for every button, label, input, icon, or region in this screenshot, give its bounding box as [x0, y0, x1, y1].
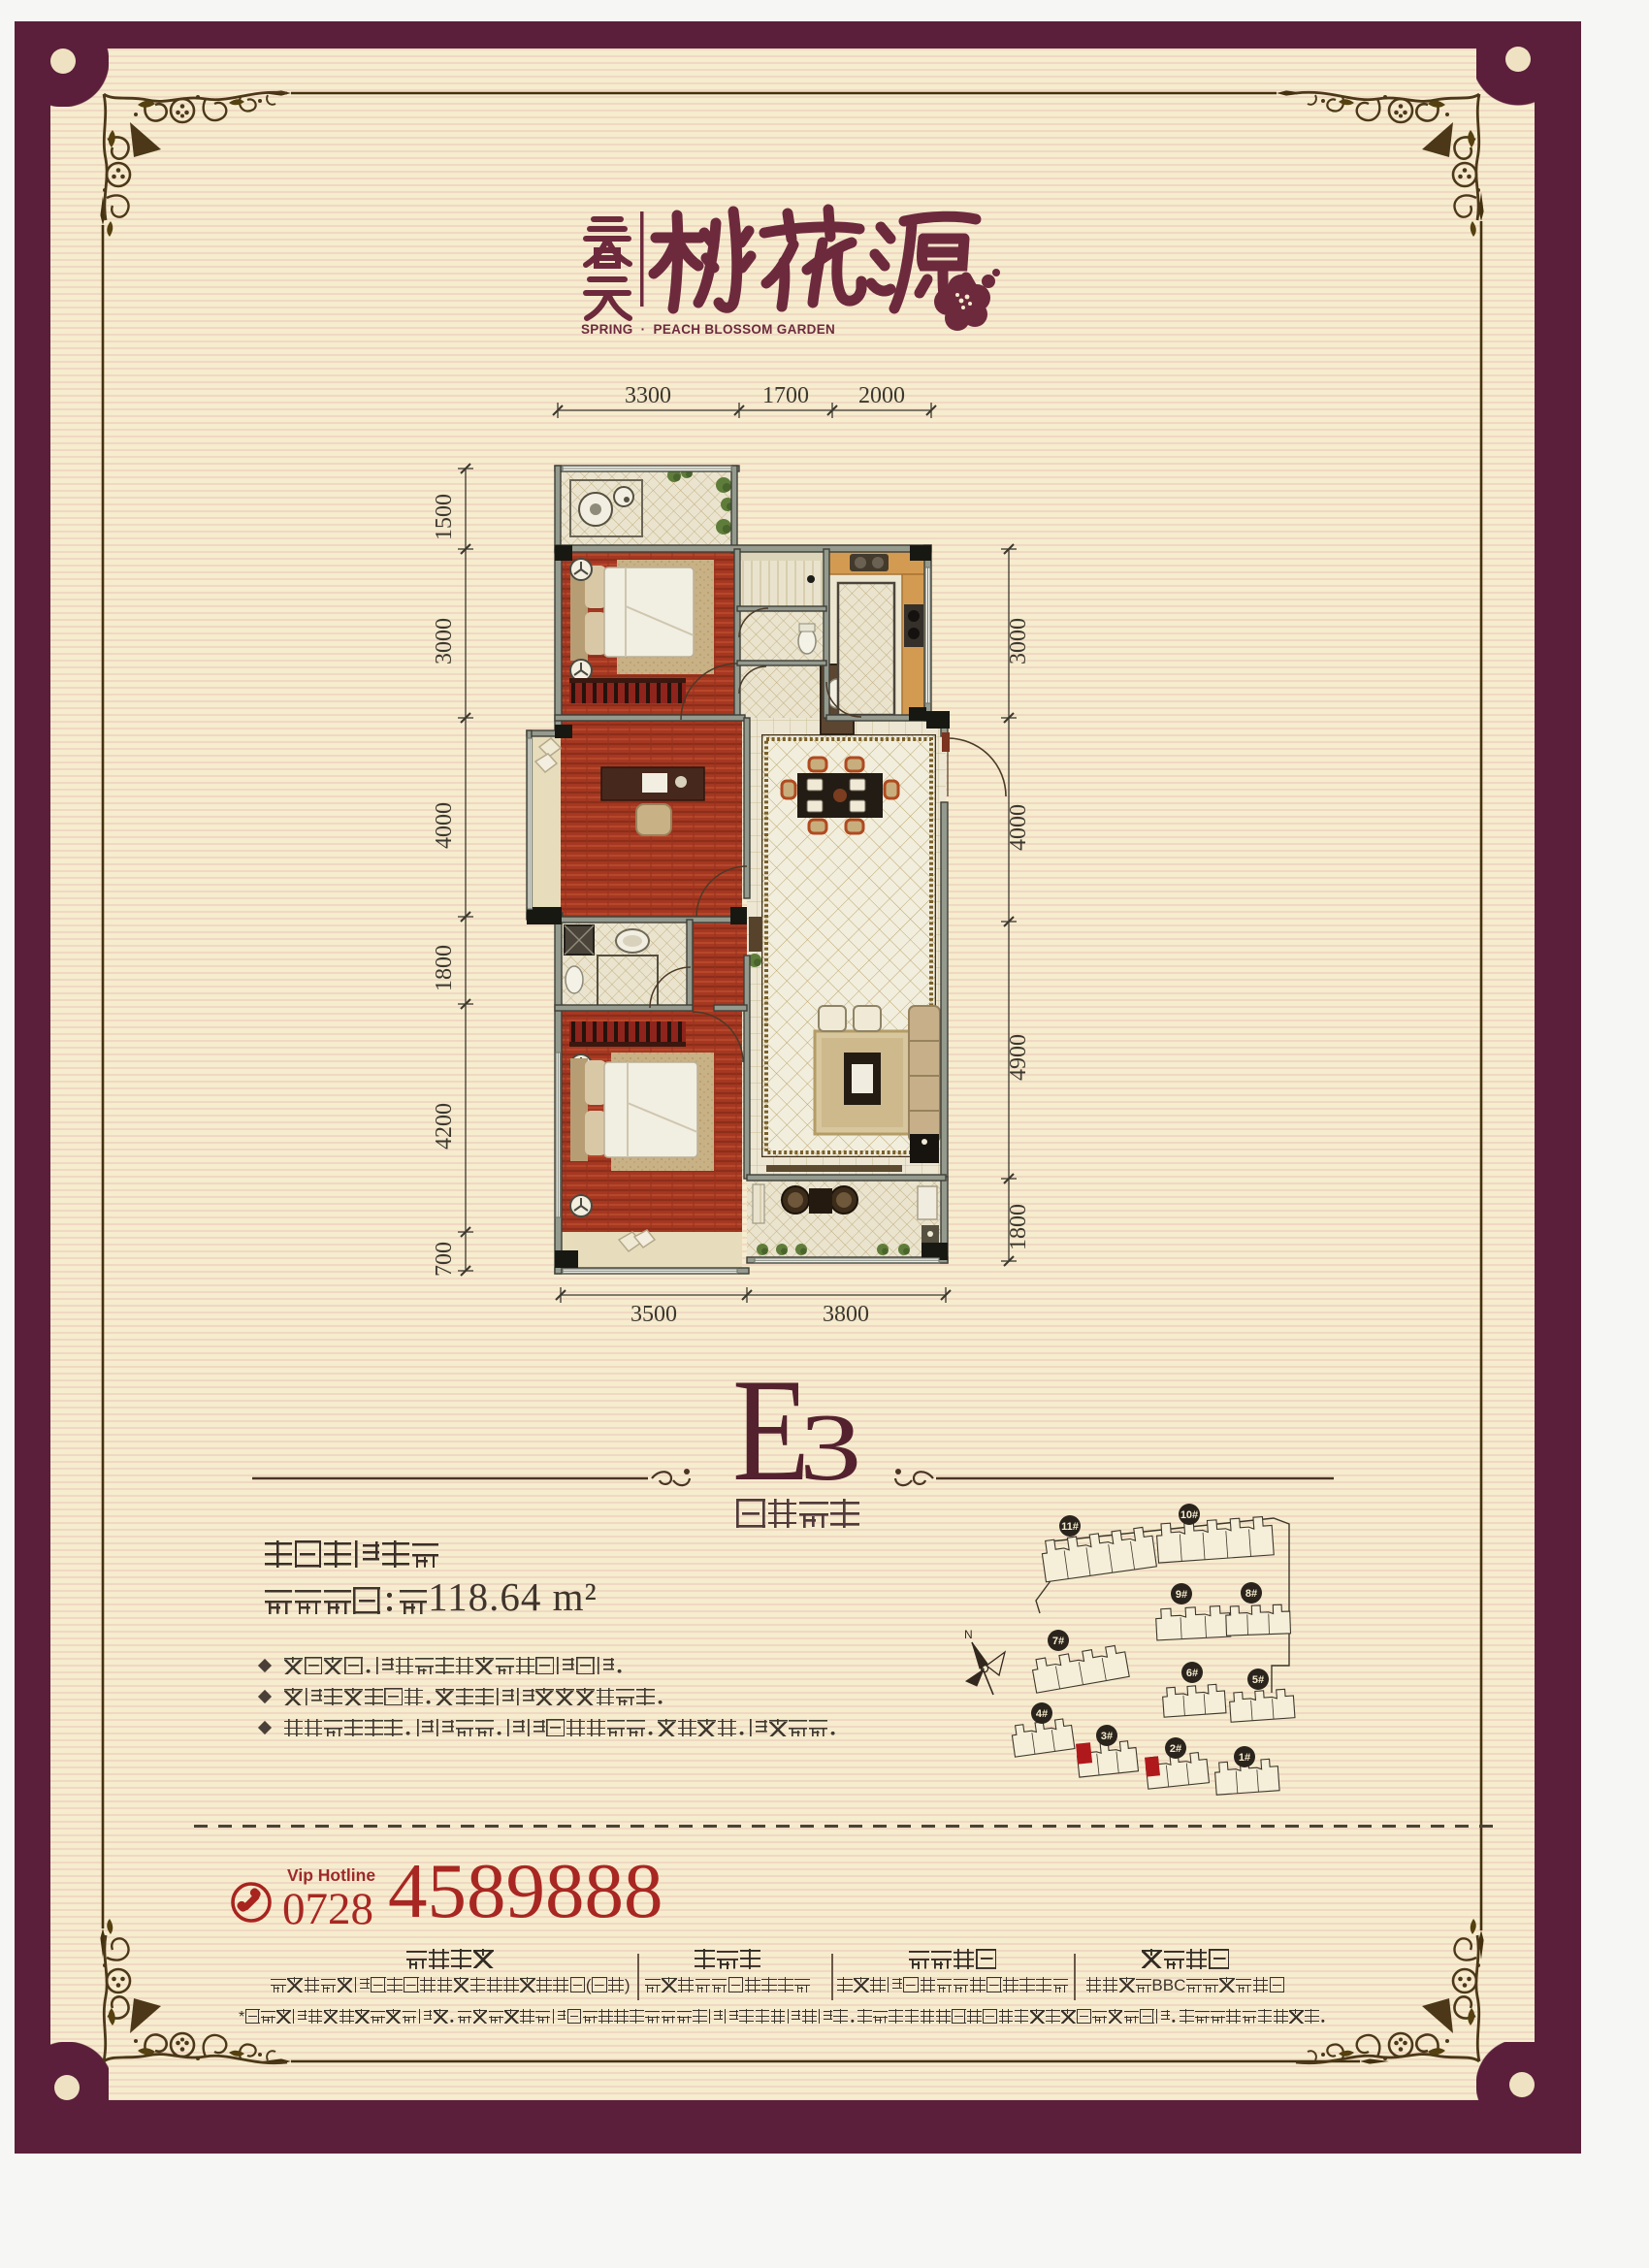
svg-text:3300: 3300	[625, 383, 671, 408]
svg-text:5#: 5#	[1252, 1674, 1264, 1686]
svg-text:10#: 10#	[1180, 1509, 1198, 1521]
svg-text:4000: 4000	[1006, 804, 1031, 851]
svg-text:2000: 2000	[858, 383, 905, 408]
svg-text:1500: 1500	[432, 494, 457, 540]
svg-text:N: N	[964, 1628, 973, 1641]
svg-text:1700: 1700	[762, 383, 809, 408]
svg-text:7#: 7#	[1052, 1636, 1064, 1647]
svg-text:2#: 2#	[1170, 1743, 1181, 1755]
svg-text:4900: 4900	[1006, 1034, 1031, 1081]
svg-text:9#: 9#	[1176, 1589, 1187, 1601]
svg-text:3000: 3000	[1006, 618, 1031, 664]
svg-text:700: 700	[432, 1242, 457, 1277]
svg-text:1#: 1#	[1239, 1752, 1250, 1764]
svg-text:3#: 3#	[1101, 1731, 1113, 1742]
svg-text:4200: 4200	[432, 1103, 457, 1150]
svg-text:3500: 3500	[630, 1302, 677, 1324]
svg-text:4#: 4#	[1036, 1708, 1048, 1720]
svg-text:6#: 6#	[1186, 1668, 1198, 1679]
svg-text:4000: 4000	[432, 802, 457, 849]
svg-text:3000: 3000	[432, 618, 457, 664]
svg-text:11#: 11#	[1061, 1521, 1079, 1533]
svg-text:1800: 1800	[1006, 1204, 1031, 1250]
svg-text:1800: 1800	[432, 945, 457, 991]
svg-text:8#: 8#	[1245, 1588, 1257, 1600]
svg-text:3800: 3800	[823, 1302, 869, 1324]
